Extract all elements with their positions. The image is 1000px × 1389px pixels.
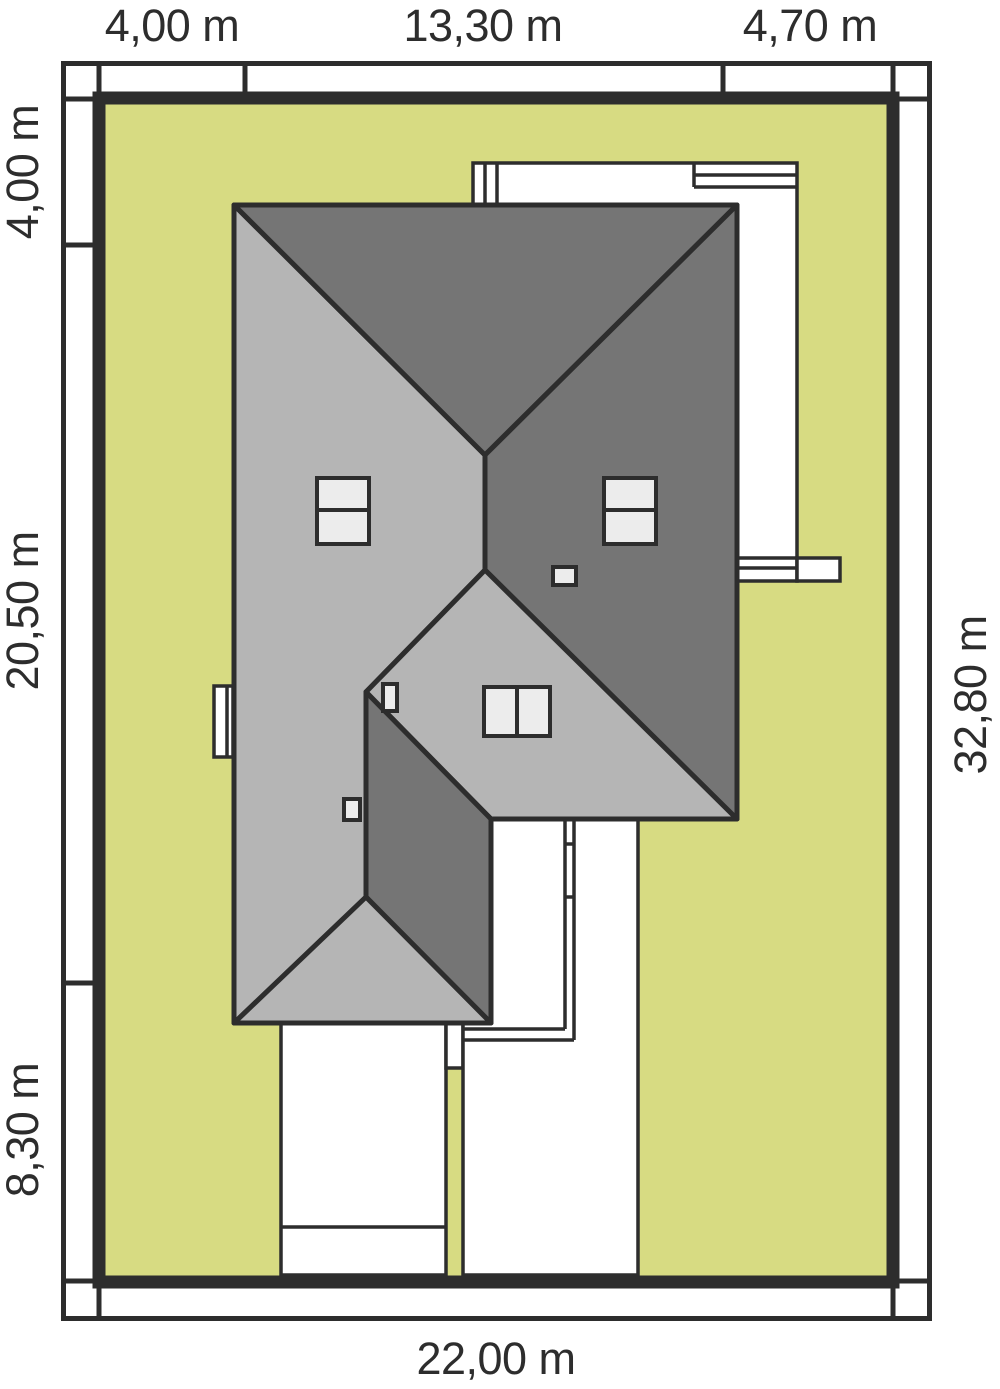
roof-vent-south bbox=[344, 799, 360, 820]
dim-right: 32,80 m bbox=[945, 615, 996, 774]
dim-top-right: 4,70 m bbox=[743, 0, 878, 51]
roof-window-left bbox=[317, 478, 369, 544]
site-plan-page: 4,00 m 13,30 m 4,70 m 4,00 m 20,50 m 8,3… bbox=[0, 0, 1000, 1389]
chimney-body bbox=[214, 686, 233, 757]
dim-left-middle: 20,50 m bbox=[0, 531, 48, 690]
driveway-surface bbox=[281, 1023, 446, 1275]
driveway bbox=[281, 1023, 463, 1275]
dim-top-center: 13,30 m bbox=[403, 0, 562, 51]
site-plan-drawing: 4,00 m 13,30 m 4,70 m 4,00 m 20,50 m 8,3… bbox=[0, 0, 1000, 1389]
roof-vent-east bbox=[553, 567, 576, 585]
dim-left-top: 4,00 m bbox=[0, 105, 48, 240]
terrace-side-step bbox=[797, 558, 840, 581]
roof-window-right bbox=[604, 478, 656, 544]
roof-window-wing bbox=[484, 687, 550, 736]
dim-top-left: 4,00 m bbox=[105, 0, 240, 51]
dim-left-bottom: 8,30 m bbox=[0, 1063, 48, 1198]
roof-vent-wing bbox=[383, 684, 397, 711]
dim-bottom: 22,00 m bbox=[416, 1333, 575, 1384]
chimney bbox=[214, 686, 233, 757]
driveway-connector bbox=[446, 1023, 463, 1068]
